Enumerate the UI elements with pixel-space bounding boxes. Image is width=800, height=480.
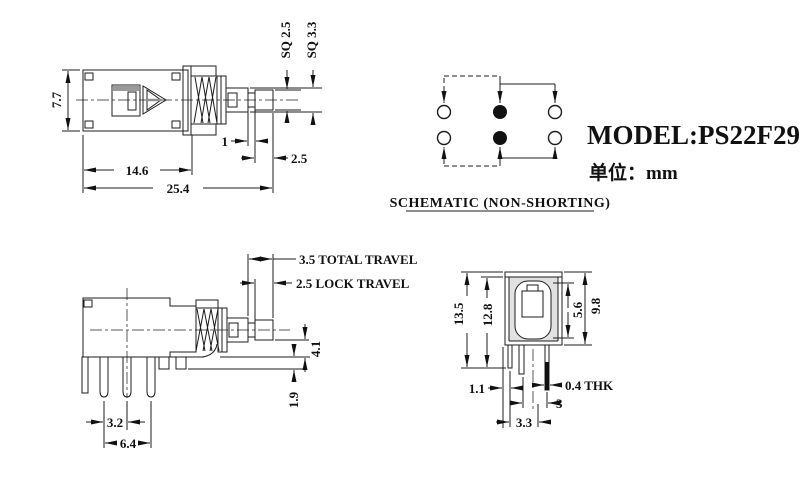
- bracket-bottom-tab: [191, 124, 216, 135]
- dim-height-to-base-label: 12.8: [480, 303, 495, 326]
- dim-standoff-label: 1.9: [286, 391, 301, 408]
- corner-mark: [172, 121, 180, 128]
- terminal-common: [493, 105, 507, 119]
- technical-drawing-page: 7.7 14.6 25.4 1 2.5 SQ 2.5: [0, 0, 800, 480]
- title-block: MODEL:PS22F29 单位：mm: [587, 120, 800, 184]
- dim-body-height-label: 9.8: [588, 297, 603, 314]
- corner-mark: [85, 73, 93, 80]
- model-number: MODEL:PS22F29: [587, 120, 800, 150]
- dim-pin-pitch-label: 3.2: [107, 415, 123, 430]
- dim-height-to-base: 12.8: [480, 278, 495, 367]
- mounting-boss: [159, 357, 169, 369]
- dim-overall-length: 25.4: [84, 181, 272, 196]
- dim-pin-span-label: 6.4: [120, 436, 137, 451]
- schematic-caption: SCHEMATIC (NON-SHORTING): [390, 196, 611, 211]
- dim-pin-pitch: 3.2: [86, 415, 145, 430]
- dim-button-size: 5.6: [568, 284, 585, 337]
- pins: [508, 345, 549, 390]
- side-tab: [82, 357, 88, 393]
- dim-sq-small: SQ 2.5: [278, 21, 293, 123]
- dim-pin-gap-label: 3: [556, 396, 563, 411]
- unit-label: 单位：mm: [589, 161, 678, 184]
- dim-edge-to-pin: 1.1: [469, 381, 519, 396]
- corner-mark: [84, 300, 92, 307]
- dim-total-travel: 3.5 TOTAL TRAVEL: [249, 252, 418, 267]
- dim-plunger-to-base-label: 4.1: [308, 341, 323, 357]
- dim-total-travel-label: 3.5 TOTAL TRAVEL: [299, 252, 418, 267]
- dim-standoff: 1.9: [286, 345, 301, 408]
- side-tab: [508, 345, 512, 368]
- dim-body-height-label: 7.7: [49, 91, 64, 108]
- dim-pin-pitch: 3.3: [496, 415, 551, 430]
- front-view: 13.5 12.8 9.8 5.6 1.1 0.4 THK: [451, 272, 614, 430]
- dim-overall-height: 13.5: [451, 273, 467, 367]
- dim-overall-height-label: 13.5: [451, 302, 466, 325]
- pin: [519, 345, 524, 374]
- dim-body-width-label: 14.6: [126, 163, 149, 178]
- drawing-canvas: 7.7 14.6 25.4 1 2.5 SQ 2.5: [0, 0, 800, 480]
- button-tab: [527, 285, 538, 291]
- dim-step-length-label: 1: [222, 134, 229, 149]
- bracket-top-tab: [191, 66, 216, 76]
- mounting-boss: [176, 357, 186, 369]
- pin: [147, 357, 155, 397]
- pin: [100, 357, 108, 397]
- terminal-open: [438, 106, 451, 119]
- terminals: [438, 105, 562, 145]
- terminal-common: [493, 131, 507, 145]
- dim-sq-large-label: SQ 3.3: [304, 21, 319, 58]
- dim-tip-length: 2.5: [241, 151, 308, 166]
- corner-mark: [172, 73, 180, 80]
- terminal-open: [549, 106, 562, 119]
- corner-mark: [85, 121, 93, 128]
- dim-pin-pitch-label: 3.3: [516, 415, 533, 430]
- dim-button-size-label: 5.6: [570, 301, 585, 318]
- dim-pin-gap: 3: [510, 396, 563, 411]
- dim-lock-travel-label: 2.5 LOCK TRAVEL: [296, 276, 410, 291]
- dim-plunger-to-base: 4.1: [305, 324, 323, 372]
- dim-body-height: 9.8: [585, 273, 603, 344]
- dim-overall-length-label: 25.4: [167, 181, 190, 196]
- dim-body-width: 14.6: [84, 163, 191, 178]
- dim-sq-large: SQ 3.3: [304, 21, 319, 123]
- top-side-view: 7.7 14.6 25.4 1 2.5 SQ 2.5: [49, 21, 322, 196]
- dim-sq-small-label: SQ 2.5: [278, 21, 293, 58]
- stem-face: [522, 291, 543, 317]
- dim-edge-to-pin-label: 1.1: [469, 381, 485, 396]
- dim-tip-length-label: 2.5: [291, 151, 308, 166]
- schematic-view: SCHEMATIC (NON-SHORTING): [390, 76, 611, 211]
- dim-step-length: 1: [222, 134, 269, 149]
- bracket-top-tab: [196, 300, 218, 308]
- dim-lock-travel: 2.5 LOCK TRAVEL: [240, 276, 410, 291]
- side-view-with-pins: 3.5 TOTAL TRAVEL 2.5 LOCK TRAVEL 4.1 1.9…: [82, 252, 418, 451]
- dim-pin-span: 6.4: [105, 436, 150, 451]
- terminal-open: [438, 132, 451, 145]
- dim-pin-thickness-label: 0.4 THK: [565, 378, 614, 393]
- dim-body-height: 7.7: [49, 71, 68, 130]
- pole-links: [444, 76, 555, 166]
- terminal-open: [549, 132, 562, 145]
